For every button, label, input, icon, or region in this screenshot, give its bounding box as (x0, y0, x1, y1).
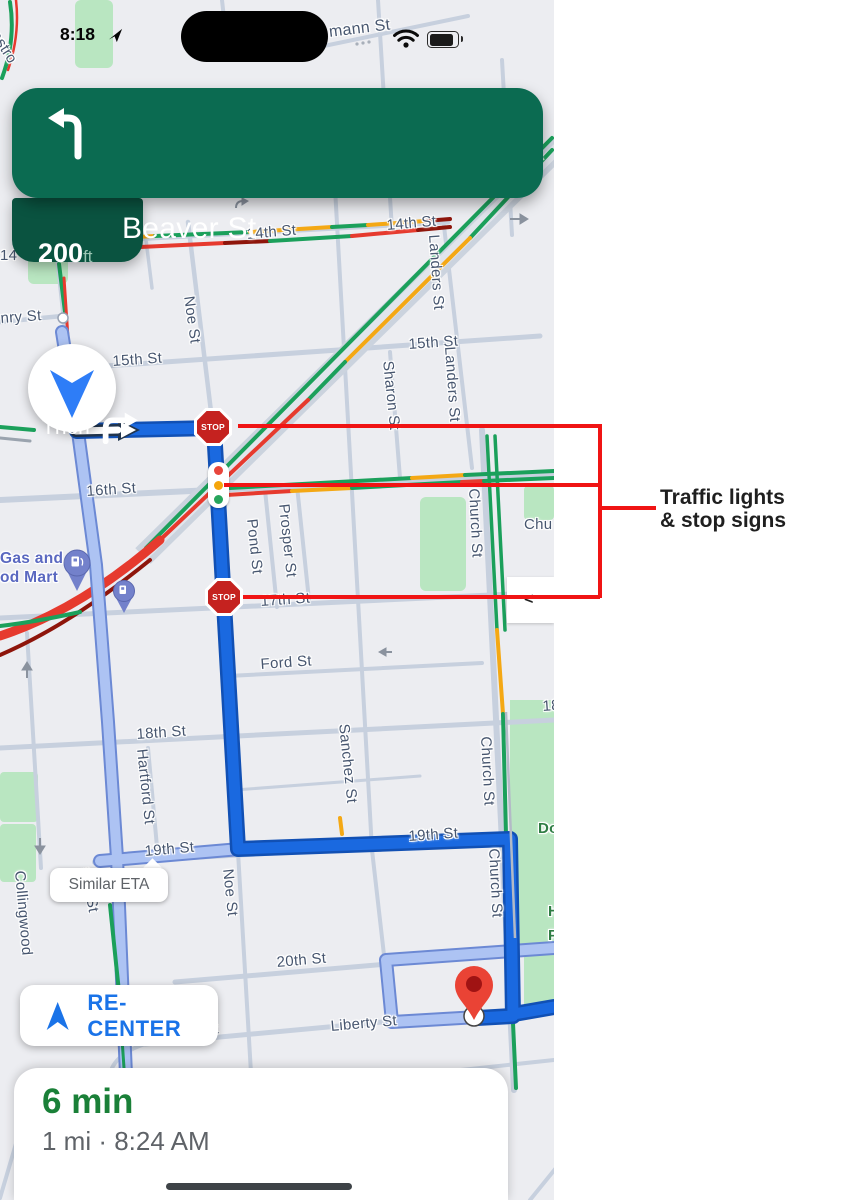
similar-eta-label: Similar ETA (69, 876, 150, 894)
annotation-line-bottom (243, 595, 600, 599)
similar-eta-chip[interactable]: Similar ETA (50, 868, 168, 902)
annotation-line-stub (598, 506, 656, 510)
battery-tip (461, 36, 464, 42)
navigation-banner[interactable]: 200ft Beaver St (12, 88, 543, 198)
chevron-left-icon: < (524, 591, 533, 609)
annotation-line-vertical (598, 424, 602, 598)
battery-fill (430, 34, 453, 46)
turn-left-icon (44, 104, 92, 160)
recenter-button[interactable]: RE-CENTER (20, 985, 218, 1046)
trip-eta: 6 min (42, 1082, 133, 1122)
home-indicator[interactable] (166, 1183, 352, 1190)
recenter-label: RE-CENTER (87, 990, 218, 1042)
battery-icon (427, 31, 459, 48)
stop-sign-label: STOP (197, 411, 229, 443)
poi-dot (58, 313, 68, 323)
distance-unit: ft (83, 247, 92, 266)
phone-screenshot: mann Stastro14th St14th St14nry St15th S… (0, 0, 554, 1200)
next-street-name: Beaver St (122, 212, 256, 246)
stop-sign-icon: STOP (194, 408, 232, 446)
annotation-line-middle (224, 483, 600, 487)
traffic-light-green-dot (214, 495, 223, 504)
traffic-light-yellow-dot (214, 481, 223, 490)
gas-station-pin-icon[interactable] (64, 550, 90, 591)
wifi-icon (393, 29, 419, 48)
turn-right-icon (98, 410, 140, 444)
status-time: 8:18 (60, 24, 95, 45)
then-label: Then (42, 416, 90, 440)
side-panel-handle[interactable]: < (507, 577, 554, 623)
trip-summary-sheet[interactable]: 6 min 1 mi · 8:24 AM (14, 1068, 508, 1200)
status-bar: 8:18 (0, 0, 554, 62)
annotation-text: Traffic lights & stop signs (660, 486, 786, 532)
location-active-icon (108, 27, 123, 44)
stop-sign-icon: STOP (205, 578, 243, 616)
trip-detail: 1 mi · 8:24 AM (42, 1126, 210, 1157)
gas-station-pin-icon[interactable] (114, 581, 135, 614)
annotation-line-top (238, 424, 600, 428)
annotated-screenshot: mann Stastro14th St14th St14nry St15th S… (0, 0, 850, 1200)
annotation-text-line1: Traffic lights (660, 486, 786, 509)
annotation-text-line2: & stop signs (660, 509, 786, 532)
dynamic-island (181, 11, 328, 62)
stop-sign-label: STOP (208, 581, 240, 613)
navigation-arrow-icon (44, 1000, 71, 1032)
traffic-light-red-dot (214, 466, 223, 475)
distance-to-turn: 200ft (38, 238, 93, 269)
